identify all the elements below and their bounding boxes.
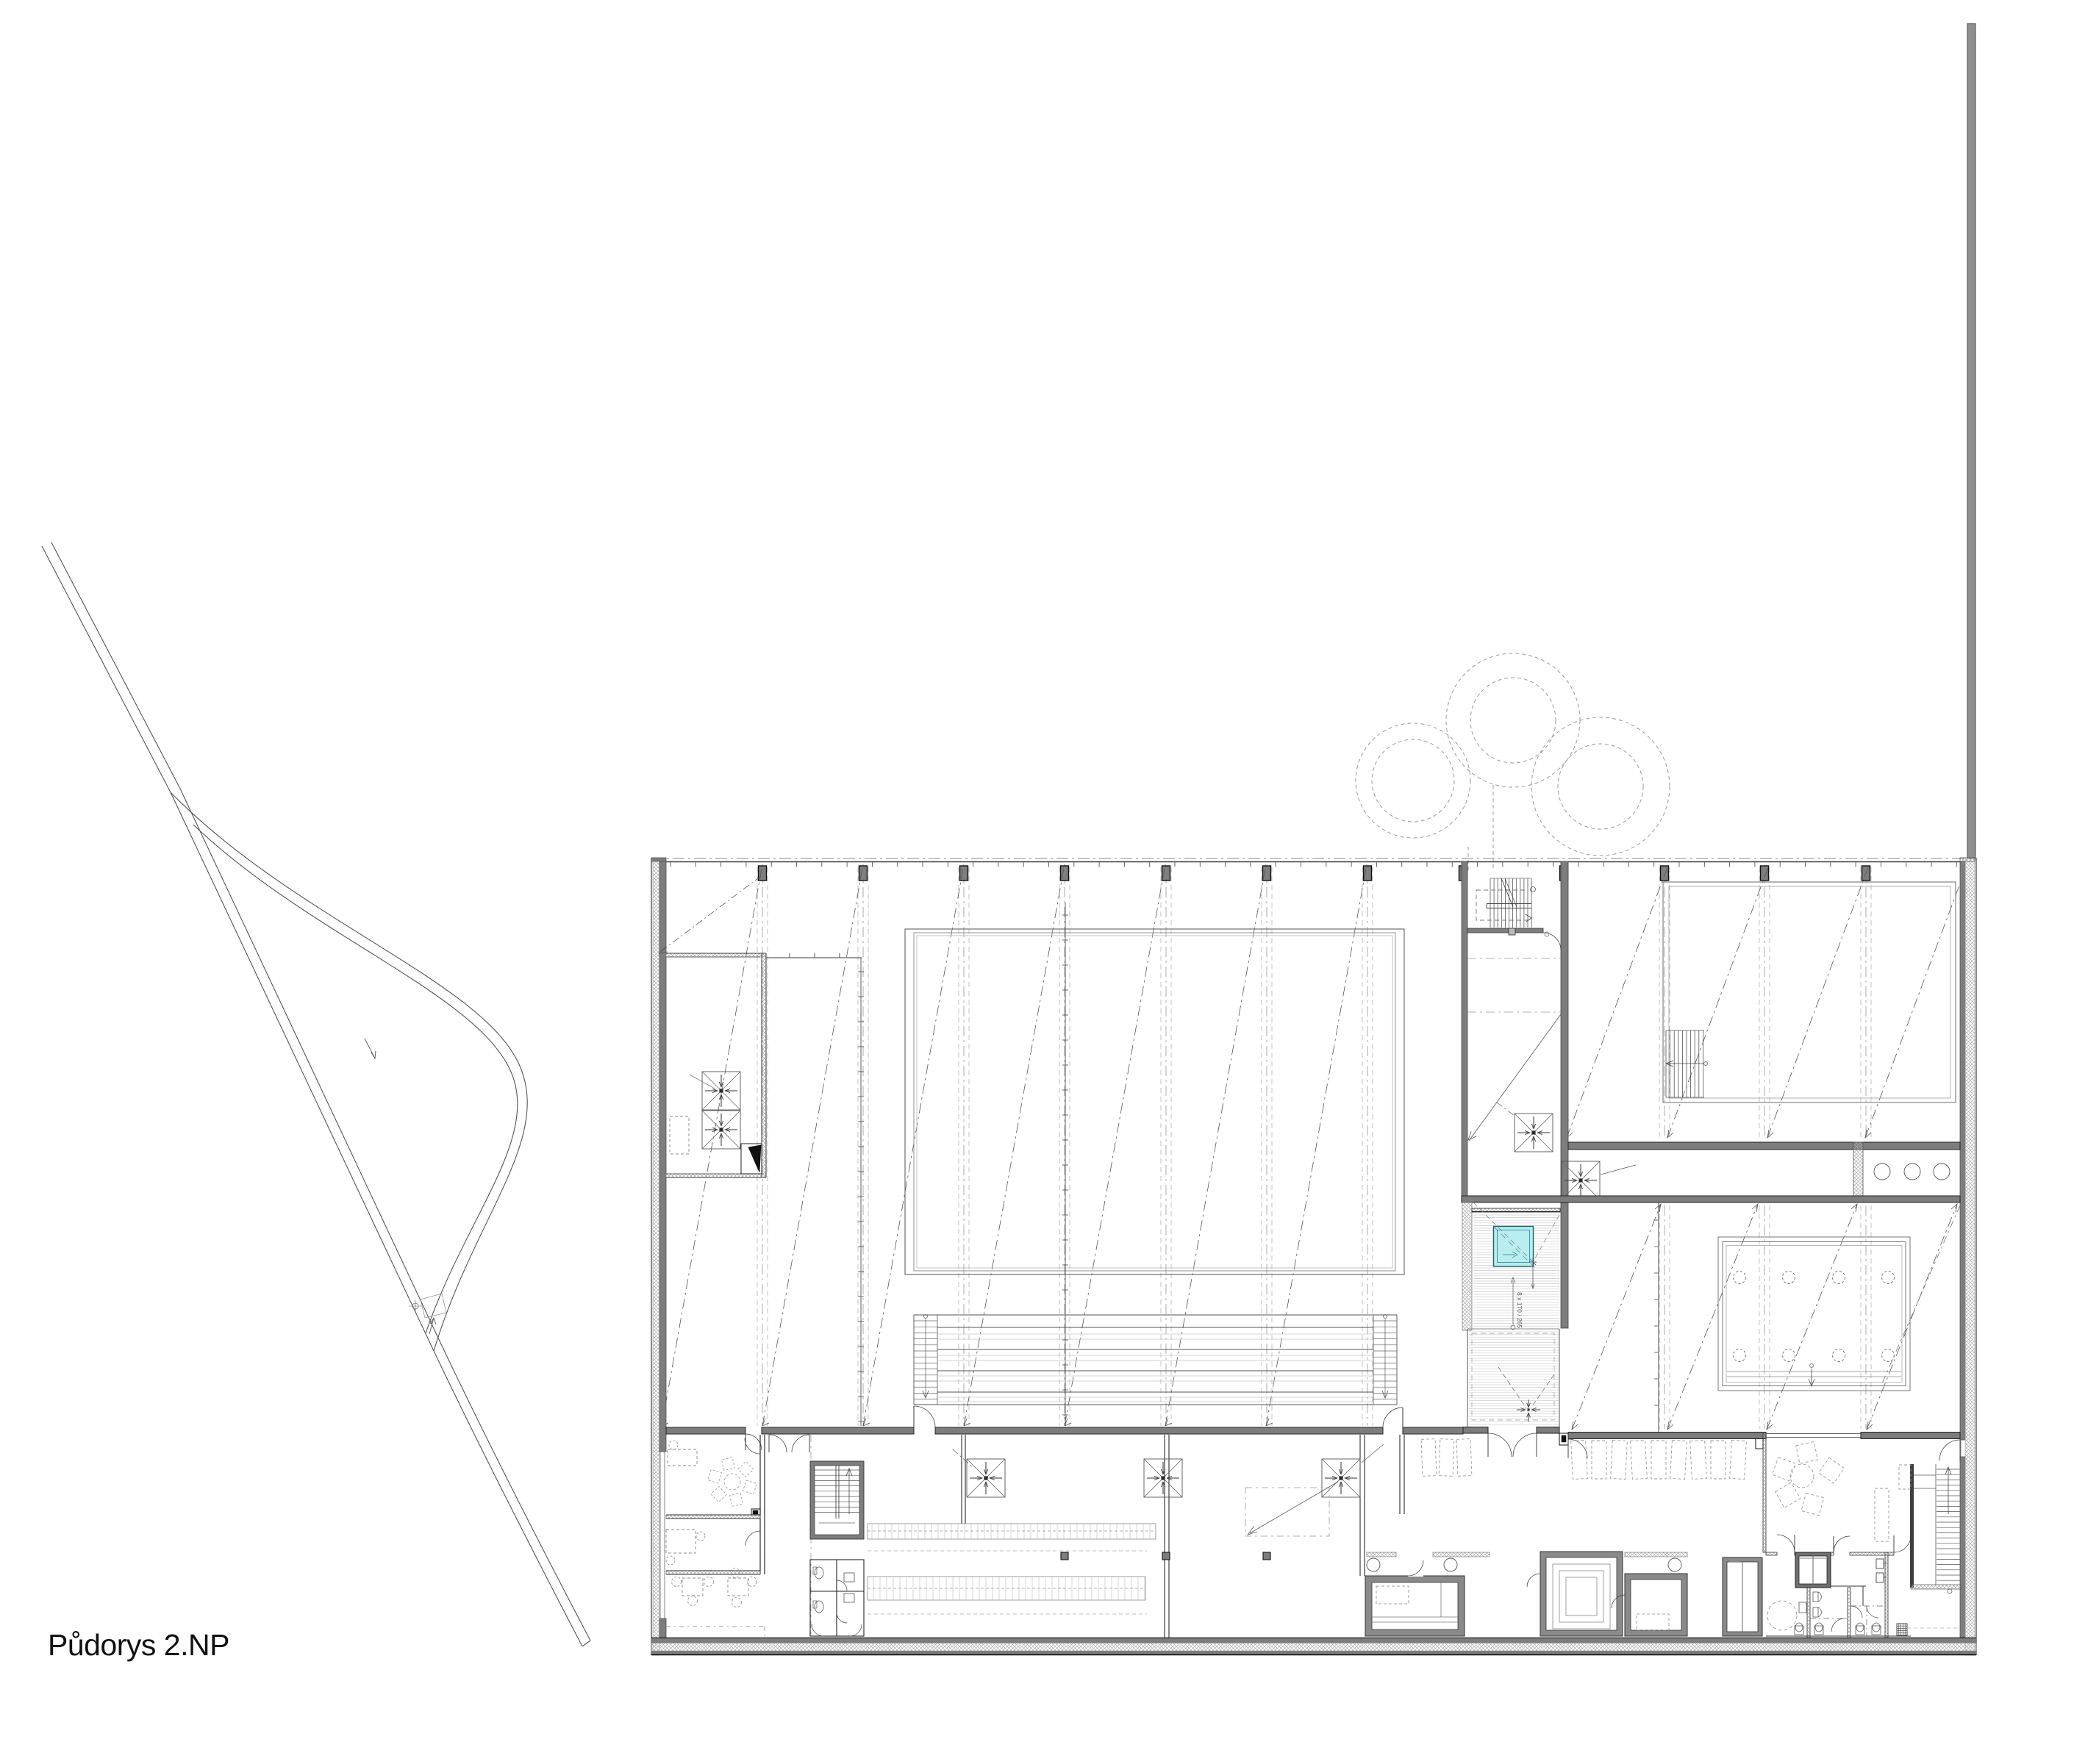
svg-text:8 x 170 / 265: 8 x 170 / 265 (1516, 1292, 1523, 1328)
svg-text:Půdorys 2.NP: Půdorys 2.NP (48, 1628, 229, 1662)
